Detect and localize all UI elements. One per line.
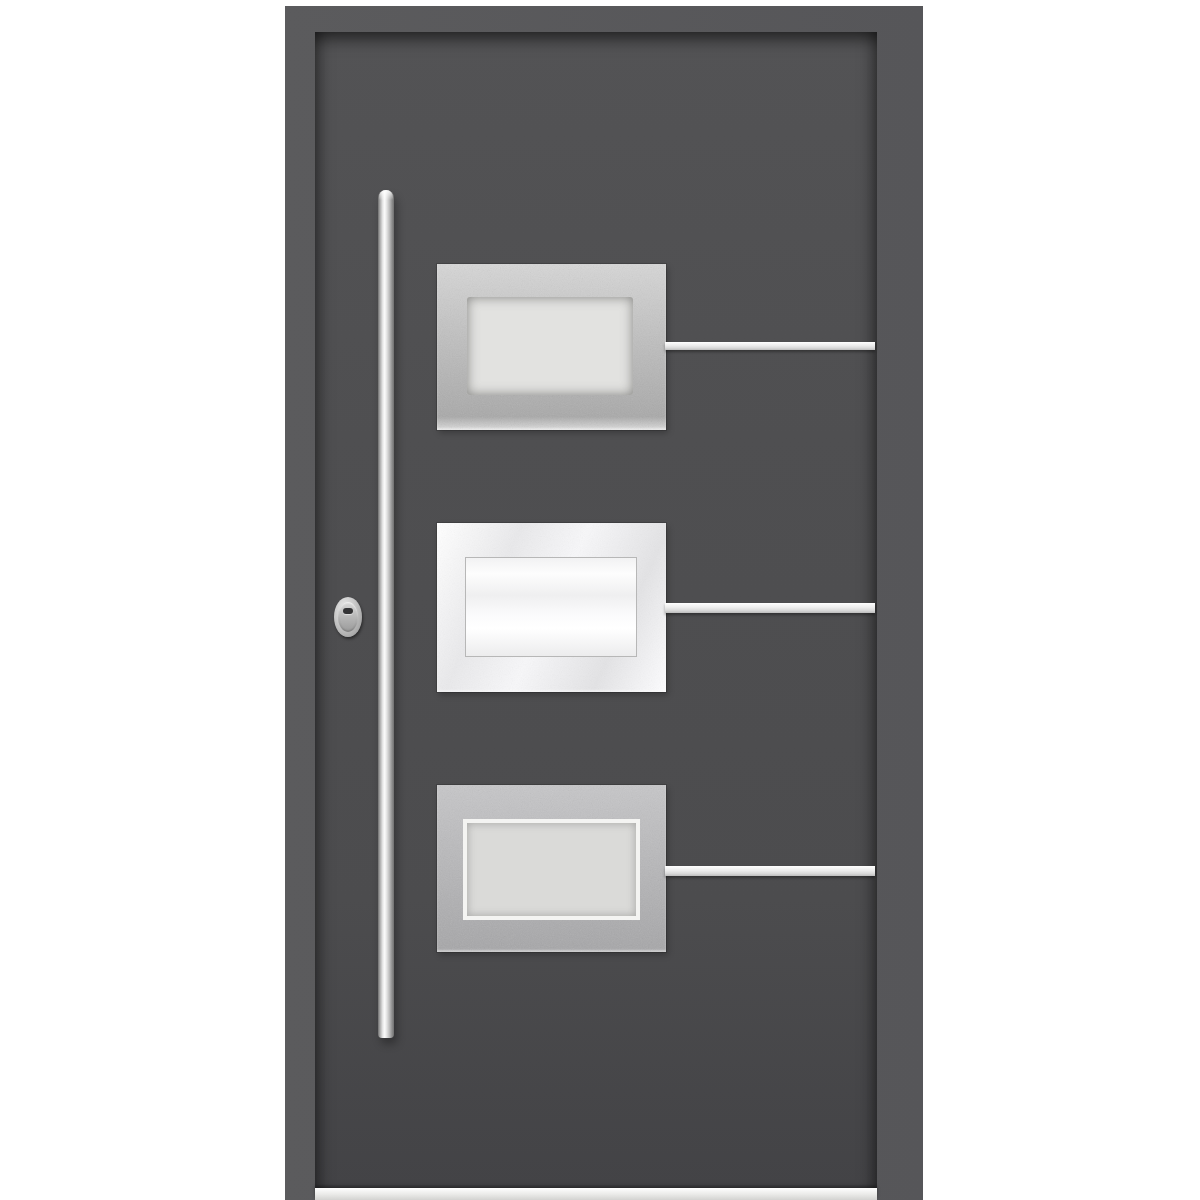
inlay-strip-middle (665, 603, 875, 613)
inlay-strip-top (665, 342, 875, 350)
glazing-panel-bottom (437, 785, 666, 952)
product-photo-canvas (0, 0, 1200, 1200)
glass-pane-bottom (463, 819, 640, 920)
keyhole-icon (343, 608, 353, 614)
inlay-strip-bottom (665, 866, 875, 876)
threshold-sill (315, 1188, 877, 1200)
pull-handle-bar (378, 190, 394, 1038)
lock-cylinder (334, 597, 362, 637)
glazing-panel-middle (437, 523, 666, 692)
glass-pane-middle (465, 557, 637, 657)
lock-escutcheon (338, 602, 358, 632)
glazing-panel-top (437, 264, 666, 430)
glass-pane-top (467, 297, 633, 395)
